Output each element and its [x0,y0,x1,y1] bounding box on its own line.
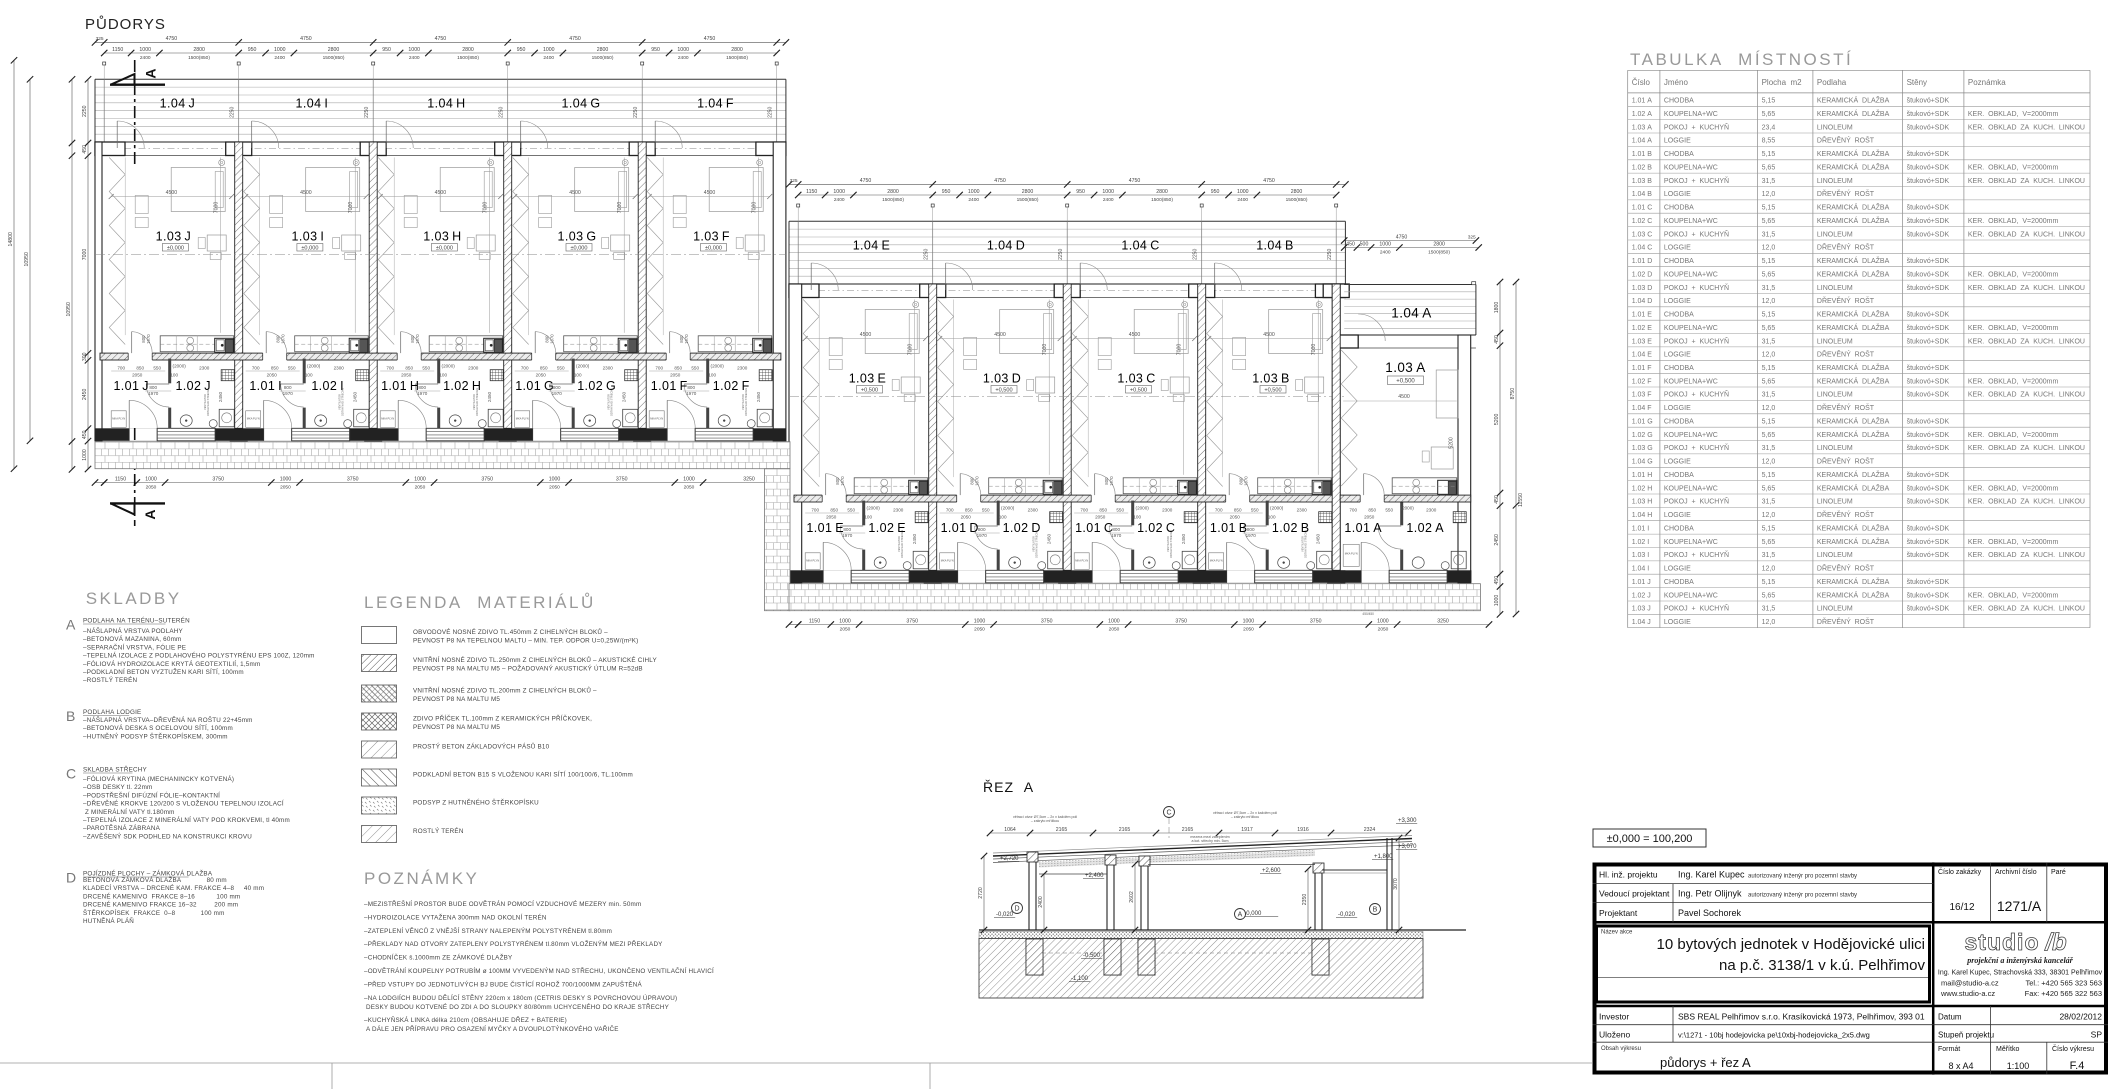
svg-text:KOUPELNA+WC: KOUPELNA+WC [1664,592,1718,599]
svg-text:950: 950 [382,47,391,53]
svg-text:2450: 2450 [1181,533,1186,544]
svg-text:2450: 2450 [487,391,492,402]
svg-text:BETONOVÁ ZÁMKOVÁ DLAŽBA: BETONOVÁ ZÁMKOVÁ DLAŽBA 80 mm [83,875,227,884]
svg-text:1.01 C: 1.01 C [1632,205,1653,212]
svg-text:2300: 2300 [737,366,748,371]
svg-text:KER. OBKLAD ZA KUCH. LINKO: KER. OBKLAD ZA KUCH. LINKOU [1968,231,2085,238]
svg-text:–BETONOVÁ DESKA S OCELOVOU SÍT: –BETONOVÁ DESKA S OCELOVOU SÍTÍ, 100mm [83,723,233,732]
svg-text:1.03 J: 1.03 J [156,230,191,244]
svg-text:MKA PLYN: MKA PLYN [650,416,663,420]
svg-text:KOUPELNA+WC: KOUPELNA+WC [1664,111,1718,118]
svg-text:CHODBA: CHODBA [1664,312,1694,319]
svg-text:3750: 3750 [1310,618,1322,624]
svg-text:1000: 1000 [414,476,426,482]
svg-text:KERAMICKÁ DLAŽBA: KERAMICKÁ DLAŽBA [1817,149,1890,158]
svg-text:1970: 1970 [1109,476,1114,486]
svg-text:1970: 1970 [283,391,294,396]
svg-text:2050: 2050 [536,373,547,378]
svg-text:1.03 C: 1.03 C [1117,372,1155,386]
svg-text:KER. OBKLAD ZA KUCH. LINKO: KER. OBKLAD ZA KUCH. LINKOU [1968,178,2085,185]
svg-text:Investor: Investor [1599,1012,1629,1022]
svg-text:Paré: Paré [2051,869,2066,876]
svg-text:3070: 3070 [1393,878,1399,890]
svg-text:5,65: 5,65 [1762,539,1776,546]
svg-text:–ZATEPLENÍ VĚNCŮ Z VNĚJŠÍ STRA: –ZATEPLENÍ VĚNCŮ Z VNĚJŠÍ STRANY NALEPEN… [364,926,612,935]
svg-text:CHODBA: CHODBA [1664,151,1694,158]
svg-text:CHODBA: CHODBA [1664,579,1694,586]
svg-text:–BETONOVÁ MAZANINA, 60mm: –BETONOVÁ MAZANINA, 60mm [83,634,181,643]
svg-text:autorizovaný inženýr pro pozem: autorizovaný inženýr pro pozemní stavby [1748,874,1857,880]
svg-text:–NÁŠLAPNÁ VRSTVA PODLAHY: –NÁŠLAPNÁ VRSTVA PODLAHY [83,626,183,635]
svg-text:450: 450 [82,430,88,439]
svg-text:+0,500: +0,500 [1130,388,1147,394]
svg-text:2165: 2165 [1056,827,1068,833]
svg-text:850: 850 [1234,508,1242,513]
svg-text:950: 950 [651,47,660,53]
svg-text:5,65: 5,65 [1762,432,1776,439]
svg-text:5200: 5200 [1449,437,1455,449]
svg-text:1970: 1970 [840,476,845,486]
svg-text:–FÓLIOVÁ HYDROIZOLACE KRYTÁ GE: –FÓLIOVÁ HYDROIZOLACE KRYTÁ GEOTEXTILIÍ,… [83,659,260,668]
svg-text:2400: 2400 [678,55,689,61]
svg-text:1.04 J: 1.04 J [1632,619,1651,626]
svg-text:KER. OBKLAD, V=2000mm: KER. OBKLAD, V=2000mm [1968,539,2059,546]
svg-text:2800: 2800 [887,189,899,195]
svg-text:1.01 D: 1.01 D [941,521,979,535]
svg-text:PODSYP Z HUTNĚNÉHO ŠTĚRKOPÍSKU: PODSYP Z HUTNĚNÉHO ŠTĚRKOPÍSKU [413,798,539,807]
svg-text:550: 550 [982,508,990,513]
svg-text:1.03 G: 1.03 G [558,230,597,244]
svg-text:1970: 1970 [146,334,151,344]
svg-text:LOGGIE: LOGGIE [1664,405,1691,412]
svg-text:MKA PLYN: MKA PLYN [1075,558,1088,562]
svg-text:2165: 2165 [1119,827,1131,833]
svg-text:DŘEVĚNÝ ROŠT: DŘEVĚNÝ ROŠT [1817,136,1875,145]
svg-text:LOGGIE: LOGGIE [1664,298,1691,305]
svg-text:2050: 2050 [267,373,278,378]
svg-text:450: 450 [1494,576,1500,585]
svg-text:10950: 10950 [66,302,72,317]
svg-text:1150: 1150 [112,47,123,53]
svg-text:F.4: F.4 [2070,1060,2085,1072]
svg-text:1000: 1000 [1494,595,1500,607]
svg-text:KER. OBKLAD, V=2000mm: KER. OBKLAD, V=2000mm [1968,218,2059,225]
svg-text:KERAMICKÁ DLAŽBA: KERAMICKÁ DLAŽBA [1817,417,1890,426]
svg-text:2800: 2800 [328,47,340,53]
svg-text:±0,000: ±0,000 [301,246,318,252]
svg-text:2300: 2300 [468,366,479,371]
svg-text:LOGGIE: LOGGIE [1664,566,1691,573]
svg-text:– zakryto mřížkou: – zakryto mřížkou [1231,815,1259,819]
svg-text:2400: 2400 [140,55,151,61]
svg-text:mail@studio-a.cz: mail@studio-a.cz [1941,979,1999,988]
svg-text:MKA PLYN: MKA PLYN [806,558,819,562]
svg-text:1.01 F: 1.01 F [651,379,688,393]
svg-text:2450: 2450 [912,533,917,544]
svg-text:700: 700 [811,508,819,513]
svg-text:MKA PLYN: MKA PLYN [1345,551,1358,555]
svg-text:7000: 7000 [1042,344,1048,356]
svg-text:3750: 3750 [481,476,493,482]
svg-text:±0,000: ±0,000 [705,246,722,252]
svg-text:±0,000: ±0,000 [436,246,453,252]
svg-text:1.04 F: 1.04 F [1632,405,1652,412]
svg-text:DŘEVĚNÝ ROŠT: DŘEVĚNÝ ROŠT [1817,350,1875,359]
svg-text:LOGGIE: LOGGIE [1664,138,1691,145]
svg-text:850: 850 [405,366,413,371]
svg-text:700: 700 [117,366,125,371]
svg-text:4500: 4500 [860,332,872,338]
svg-text:Uloženo: Uloženo [1599,1030,1630,1040]
svg-text:1.03 F: 1.03 F [693,230,730,244]
svg-text:2050: 2050 [401,373,412,378]
svg-text:2450: 2450 [756,391,761,402]
svg-text:štukovó+SDK: štukovó+SDK [1907,499,1950,506]
svg-text:1.02 C: 1.02 C [1632,218,1653,225]
svg-text:štukovó+SDK: štukovó+SDK [1907,151,1950,158]
svg-text:12,0: 12,0 [1762,459,1776,466]
svg-text:2165: 2165 [1182,827,1194,833]
svg-text:2450: 2450 [218,391,223,402]
svg-text:štukovó+SDK: štukovó+SDK [1907,419,1950,426]
svg-text:KERAMICKÁ DLAŽBA: KERAMICKÁ DLAŽBA [1817,590,1890,599]
svg-text:+0,500: +0,500 [861,388,878,394]
svg-text:12,0: 12,0 [1762,298,1776,305]
svg-text:+3,070: +3,070 [1398,844,1417,850]
svg-text:POKOJ + KUCHYŇ: POKOJ + KUCHYŇ [1664,550,1729,559]
svg-text:2250: 2250 [499,107,505,118]
svg-text:2800: 2800 [1433,241,1445,247]
svg-text:(2000): (2000) [711,364,725,369]
svg-text:KERAMICKÁ DLAŽBA: KERAMICKÁ DLAŽBA [1817,163,1890,172]
svg-text:1.03 E: 1.03 E [849,372,887,386]
svg-text:4750: 4750 [300,36,312,42]
svg-text:(2000): (2000) [576,364,590,369]
svg-text:štukovó+SDK: štukovó+SDK [1907,485,1950,492]
svg-text:ROSTLÝ TERÉN: ROSTLÝ TERÉN [413,826,464,835]
svg-text:1.01 I: 1.01 I [249,379,282,393]
svg-text:2800: 2800 [1022,189,1034,195]
svg-text:v:\1271 - 10bj hodejovicka pe\: v:\1271 - 10bj hodejovicka pe\10xbj-hode… [1678,1031,1870,1040]
svg-text:štukovó+SDK: štukovó+SDK [1907,525,1950,532]
svg-text:1.03 H: 1.03 H [1632,499,1653,506]
svg-text:a kot. střechy min. 5cm: a kot. střechy min. 5cm [1192,839,1229,843]
svg-text:100: 100 [864,515,872,520]
svg-text:1000: 1000 [408,47,420,53]
svg-text:3750: 3750 [906,618,918,624]
svg-text:1.02 J: 1.02 J [1632,592,1651,599]
svg-text:KERAMICKÁ DLAŽBA: KERAMICKÁ DLAŽBA [1817,470,1890,479]
svg-text:800: 800 [1112,527,1120,532]
svg-text:2300: 2300 [199,366,210,371]
svg-text:VNITŘNÍ NOSNÉ ZDIVO TL.250mm Z: VNITŘNÍ NOSNÉ ZDIVO TL.250mm Z CIHELNÝCH… [413,655,657,664]
svg-text:TABULKA MÍSTNOSTÍ: TABULKA MÍSTNOSTÍ [1630,50,1853,69]
svg-text:LINOLEUM: LINOLEUM [1817,285,1853,292]
svg-text:PEVNOST P8 NA MALTU M5 – POŽAD: PEVNOST P8 NA MALTU M5 – POŽADOVANÝ AKUS… [413,664,643,673]
svg-text:1000: 1000 [274,47,286,53]
svg-text:1500(850): 1500(850) [882,197,904,203]
svg-text:(2000): (2000) [307,364,321,369]
svg-text:MKA PLYN: MKA PLYN [516,416,529,420]
svg-text:100: 100 [1133,515,1141,520]
svg-text:štukovó+SDK: štukovó+SDK [1907,378,1950,385]
svg-text:MKA PLYN: MKA PLYN [112,416,125,420]
svg-text:Ing. Petr Olijnyk: Ing. Petr Olijnyk [1678,889,1742,899]
svg-text:–OSB DESKY tl. 22mm: –OSB DESKY tl. 22mm [83,784,152,791]
svg-text:1.04 D: 1.04 D [987,238,1025,252]
svg-text:700: 700 [521,366,529,371]
svg-text:7000: 7000 [82,249,88,261]
svg-text:1.02 C: 1.02 C [1137,521,1175,535]
svg-text:950: 950 [248,47,257,53]
svg-text:SBS REAL Pelhřimov s.r.o. Kras: SBS REAL Pelhřimov s.r.o. Krasíkovická 1… [1678,1012,1925,1022]
svg-text:5,65: 5,65 [1762,325,1776,332]
svg-text:1.02 B: 1.02 B [1632,165,1653,172]
svg-text:2400: 2400 [543,55,554,61]
svg-text:1.02 B: 1.02 B [1272,521,1310,535]
svg-text:KERAMICKÁ DLAŽBA: KERAMICKÁ DLAŽBA [1817,577,1890,586]
svg-text:D: D [1014,906,1019,913]
svg-text:1.02 H: 1.02 H [1632,485,1653,492]
svg-text:/b: /b [2044,929,2066,956]
svg-text:2050: 2050 [1243,627,1254,633]
svg-text:1.03 I: 1.03 I [292,230,325,244]
svg-text:–ROSTLÝ TERÉN: –ROSTLÝ TERÉN [83,675,138,684]
svg-text:–KUCHYŇSKÁ LINKA délka 210cm (: –KUCHYŇSKÁ LINKA délka 210cm (OBSAHUJE D… [364,1015,567,1024]
svg-text:850: 850 [965,508,973,513]
svg-text:štukovó+SDK: štukovó+SDK [1907,432,1950,439]
svg-text:A: A [142,509,158,519]
svg-text:KERAMICKÁ DLAŽBA: KERAMICKÁ DLAŽBA [1817,256,1890,265]
svg-text:31,5: 31,5 [1762,392,1776,399]
svg-text:1.03 H: 1.03 H [423,230,461,244]
svg-text:POZNÁMKY: POZNÁMKY [364,869,479,888]
svg-text:štukovó+SDK: štukovó+SDK [1907,592,1950,599]
svg-text:B: B [66,708,75,724]
svg-text:±0,000: ±0,000 [570,246,587,252]
svg-text:1.04 E: 1.04 E [853,238,891,252]
svg-text:31,5: 31,5 [1762,499,1776,506]
svg-text:DŘEVĚNÝ ROŠT: DŘEVĚNÝ ROŠT [1817,617,1875,626]
svg-text:–TEPELNÁ IZOLACE Z PODLAHOVÉHO: –TEPELNÁ IZOLACE Z PODLAHOVÉHO POLYSTYRÉ… [83,651,315,660]
svg-text:KERAMICKÁ DLAŽBA: KERAMICKÁ DLAŽBA [1817,323,1890,332]
svg-text:3750: 3750 [1041,618,1053,624]
svg-text:–CHODNÍČEK š.1000mm ZE ZÁMKOVÉ: –CHODNÍČEK š.1000mm ZE ZÁMKOVÉ DLAŽBY [364,953,513,962]
svg-text:LOGGIE: LOGGIE [1664,191,1691,198]
svg-text:+2,600: +2,600 [1262,868,1281,874]
svg-text:1.04 A: 1.04 A [1632,138,1653,145]
svg-text:5,65: 5,65 [1762,111,1776,118]
svg-text:KER. OBKLAD, V=2000mm: KER. OBKLAD, V=2000mm [1968,432,2059,439]
svg-text:KER. OBKLAD, V=2000mm: KER. OBKLAD, V=2000mm [1968,271,2059,278]
svg-text:4750: 4750 [569,36,581,42]
svg-text:štukovó+SDK: štukovó+SDK [1907,124,1950,131]
svg-text:–FÓLIOVÁ KRYTINA (MECHANINCKY: –FÓLIOVÁ KRYTINA (MECHANINCKY KOTVENÁ) [83,774,234,783]
svg-text:DŘEVĚNÝ ROŠT: DŘEVĚNÝ ROŠT [1817,510,1875,519]
svg-text:KER. OBKLAD ZA KUCH. LINKO: KER. OBKLAD ZA KUCH. LINKOU [1968,606,2085,613]
svg-text:OBVODOVÉ NOSNÉ ZDIVO TL.450mm: OBVODOVÉ NOSNÉ ZDIVO TL.450mm Z CIHELNÝC… [413,627,608,636]
svg-text:2800: 2800 [1156,189,1168,195]
svg-text:1.01 J: 1.01 J [1632,579,1651,586]
svg-text:– zakryto mřížkou: – zakryto mřížkou [1031,819,1059,823]
svg-text:+2,400: +2,400 [1085,873,1104,879]
svg-text:2300: 2300 [334,366,345,371]
svg-text:2050: 2050 [1378,627,1389,633]
svg-text:2050: 2050 [684,485,695,491]
svg-text:KOUPELNA+WC: KOUPELNA+WC [1664,378,1718,385]
svg-text:850: 850 [1368,508,1376,513]
svg-text:–PAROTĚSNÁ ZÁBRANA: –PAROTĚSNÁ ZÁBRANA [83,823,161,832]
svg-text:2050: 2050 [132,373,143,378]
svg-text:700: 700 [1349,508,1357,513]
svg-text:2400: 2400 [834,197,845,203]
svg-text:1.01 J: 1.01 J [113,379,148,393]
svg-text:2250: 2250 [1058,249,1064,260]
svg-text:studio: studio [1965,929,2040,955]
svg-text:550: 550 [1385,508,1393,513]
svg-text:700: 700 [655,366,663,371]
svg-text:A DÁLE JEN PŘÍPRAVU PRO OSAZEN: A DÁLE JEN PŘÍPRAVU PRO OSAZENÍ MYČKY A … [364,1024,619,1033]
svg-text:2050: 2050 [415,485,426,491]
svg-text:4750: 4750 [435,36,447,42]
svg-text:950: 950 [1211,189,1220,195]
svg-text:1.02 H: 1.02 H [443,379,481,393]
svg-text:Stěny: Stěny [1907,78,1927,87]
svg-text:2050: 2050 [670,373,681,378]
svg-text:1.02 G: 1.02 G [1632,432,1653,439]
svg-text:2250: 2250 [924,249,930,260]
svg-text:2050: 2050 [1095,515,1106,520]
svg-text:1.01 G: 1.01 G [515,379,554,393]
svg-text:950: 950 [942,189,951,195]
svg-text:1970: 1970 [281,334,286,344]
svg-text:+0,500: +0,500 [995,388,1012,394]
svg-text:2050: 2050 [826,515,837,520]
svg-text:2250: 2250 [768,107,774,118]
svg-text:1.04 I: 1.04 I [1632,566,1650,573]
svg-text:+0,500: +0,500 [1396,379,1415,385]
svg-text:4500: 4500 [1129,332,1141,338]
svg-text:450: 450 [82,145,88,154]
svg-text:1.04 E: 1.04 E [1632,352,1653,359]
svg-text:31,5: 31,5 [1762,231,1776,238]
svg-text:1.03 E: 1.03 E [1632,338,1653,345]
svg-text:SKLADBY: SKLADBY [86,589,182,608]
svg-text:700: 700 [252,366,260,371]
svg-text:PEVNOST P8 NA TEPELNOU MALTU –: PEVNOST P8 NA TEPELNOU MALTU – MIN. TEP.… [413,638,638,645]
svg-text:4500: 4500 [704,190,716,196]
svg-text:5,15: 5,15 [1762,205,1776,212]
svg-text:2250: 2250 [364,107,370,118]
svg-text:PODKLADNÍ BETON B15 S VLOŽENOU: PODKLADNÍ BETON B15 S VLOŽENOU KARI SÍTÍ… [413,770,633,779]
svg-text:1000: 1000 [280,476,292,482]
svg-text:2300: 2300 [1028,508,1039,513]
svg-text:100: 100 [999,515,1007,520]
svg-text:DRCENÉ KAMENIVO FRAKCE 8–16: DRCENÉ KAMENIVO FRAKCE 8–16 100 mm [83,891,240,900]
svg-text:800: 800 [978,527,986,532]
svg-text:Ing. Karel Kupec, Strachovská: Ing. Karel Kupec, Strachovská 333, 38301… [1938,970,2103,977]
svg-text:5,15: 5,15 [1762,472,1776,479]
svg-text:(2000): (2000) [173,364,187,369]
svg-text:štukovó+SDK: štukovó+SDK [1907,606,1950,613]
svg-text:1.03 A: 1.03 A [1385,360,1425,375]
svg-text:CHODBA: CHODBA [1664,419,1694,426]
svg-text:štukovó+SDK: štukovó+SDK [1907,271,1950,278]
svg-text:půdorys + řez A: půdorys + řez A [1660,1055,1751,1070]
svg-text:4750: 4750 [704,36,716,42]
svg-text:-1,100: -1,100 [1071,976,1089,982]
svg-text:1000: 1000 [683,476,695,482]
svg-text:1970: 1970 [684,334,689,344]
svg-text:Archivní číslo: Archivní číslo [1995,869,2037,876]
svg-text:KOUPELNA+WC: KOUPELNA+WC [1664,218,1718,225]
svg-text:štukovó+SDK: štukovó+SDK [1907,178,1950,185]
svg-text:KER. OBKLAD, V=2000mm: KER. OBKLAD, V=2000mm [1968,485,2059,492]
svg-text:KERAMICKÁ DLAŽBA: KERAMICKÁ DLAŽBA [1817,363,1890,372]
svg-text:2720: 2720 [978,887,984,899]
svg-text:2800: 2800 [597,47,609,53]
svg-text:1500(850): 1500(850) [457,55,479,61]
svg-text:1500(850): 1500(850) [726,55,748,61]
svg-text:Ing. Karel Kupec: Ing. Karel Kupec [1678,870,1745,880]
svg-text:(2000): (2000) [1136,506,1150,511]
svg-text:Měřítko: Měřítko [1996,1046,2019,1053]
svg-text:PŮDORYS: PŮDORYS [85,15,166,33]
svg-text:D: D [66,870,76,886]
svg-text:2050: 2050 [549,485,560,491]
svg-text:2400: 2400 [1237,197,1248,203]
svg-text:1064: 1064 [1004,827,1016,833]
svg-text:–HUTNĚNÝ PODSYP ŠTĚRKOPÍSKEM,: –HUTNĚNÝ PODSYP ŠTĚRKOPÍSKEM, 300mm [83,731,228,740]
svg-text:ZDIVO PŘÍČEK TL.100mm Z KERAMI: ZDIVO PŘÍČEK TL.100mm Z KERAMICKÝCH PŘÍČ… [413,714,592,723]
svg-text:1.03 G: 1.03 G [1632,445,1653,452]
svg-text:PODLAHA NA TERÉNU–SUTERÉN: PODLAHA NA TERÉNU–SUTERÉN [83,616,190,625]
svg-text:850: 850 [830,508,838,513]
svg-text:LINOLEUM: LINOLEUM [1817,231,1853,238]
svg-text:štukovó+SDK: štukovó+SDK [1907,539,1950,546]
svg-text:KER. OBKLAD, V=2000mm: KER. OBKLAD, V=2000mm [1968,378,2059,385]
svg-text:850: 850 [540,366,548,371]
svg-text:(2000): (2000) [1001,506,1015,511]
svg-text:KERAMICKÁ DLAŽBA: KERAMICKÁ DLAŽBA [1817,203,1890,212]
svg-text:1.01 I: 1.01 I [1632,525,1650,532]
svg-text:2050: 2050 [840,627,851,633]
svg-text:3750: 3750 [616,476,628,482]
svg-text:1.04 C: 1.04 C [1121,238,1159,252]
svg-text:DŘEVĚNÝ ROŠT: DŘEVĚNÝ ROŠT [1817,403,1875,412]
svg-text:2400: 2400 [409,55,420,61]
svg-text:10950: 10950 [24,252,30,267]
svg-text:KER. OBKLAD ZA KUCH. LINKO: KER. OBKLAD ZA KUCH. LINKOU [1968,285,2085,292]
svg-text:100: 100 [439,373,447,378]
svg-text:2250: 2250 [230,107,236,118]
svg-text:Jméno: Jméno [1664,78,1689,87]
svg-text:4500: 4500 [435,190,447,196]
svg-text:2250: 2250 [633,107,639,118]
svg-text:3250: 3250 [743,476,755,482]
svg-text:www.studio-a.cz: www.studio-a.cz [1940,989,1995,998]
svg-text:12,0: 12,0 [1762,245,1776,252]
svg-text:2250: 2250 [1327,249,1333,260]
svg-text:1.01 H: 1.01 H [1632,472,1653,479]
svg-text:PROSTÝ BETON ZÁKLADOVÝCH PÁSŮ: PROSTÝ BETON ZÁKLADOVÝCH PÁSŮ B10 [413,742,550,751]
svg-text:2300: 2300 [1162,508,1173,513]
svg-text:LINOLEUM: LINOLEUM [1817,124,1853,131]
svg-text:1.01 C: 1.01 C [1075,521,1113,535]
svg-text:2250: 2250 [1193,249,1199,260]
svg-text:LEGENDA MATERIÁLŮ: LEGENDA MATERIÁLŮ [364,593,596,612]
svg-text:Číslo výkresu: Číslo výkresu [2052,1044,2094,1053]
